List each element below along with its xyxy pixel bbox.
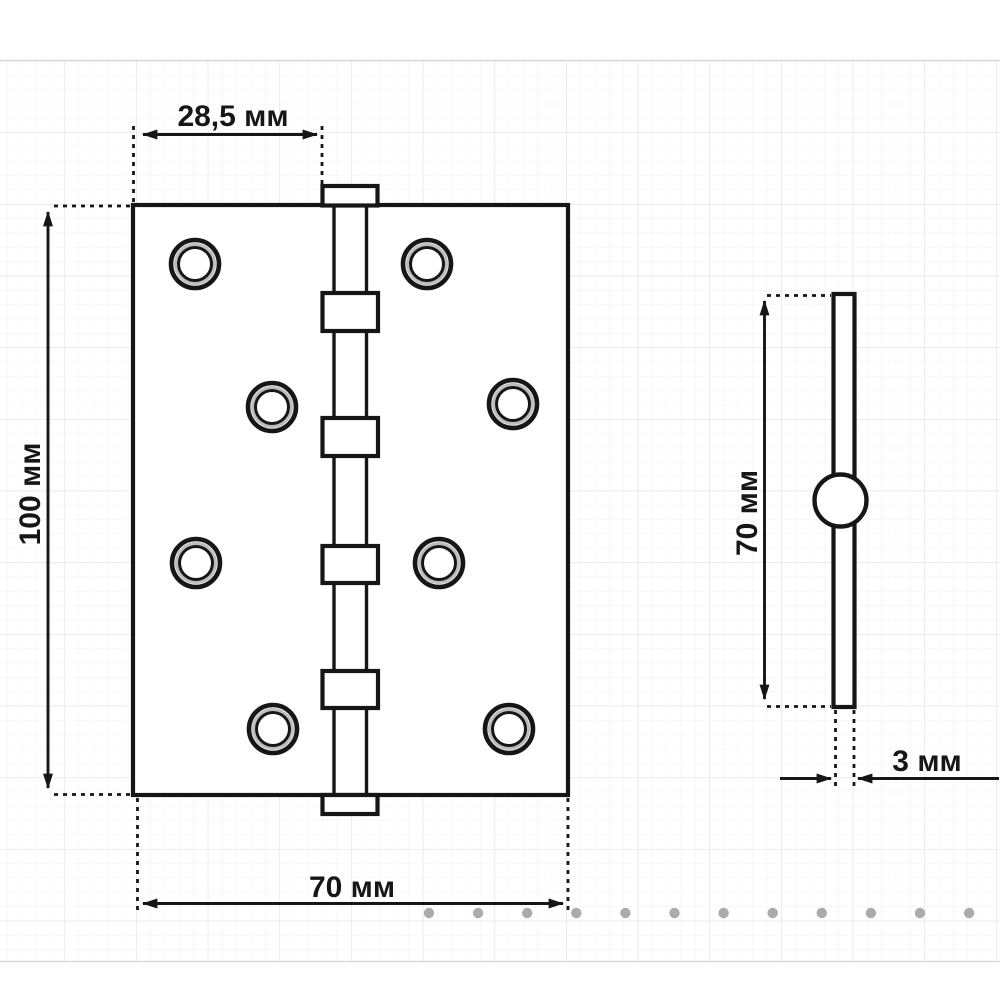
side-height-label: 70 мм — [731, 470, 764, 556]
carousel-dot[interactable] — [718, 908, 728, 918]
screw-hole — [249, 705, 297, 753]
carousel-dot[interactable] — [473, 908, 483, 918]
carousel-dot[interactable] — [669, 908, 679, 918]
screw-hole — [485, 705, 533, 753]
carousel-dot[interactable] — [768, 908, 778, 918]
hinge-knuckle — [323, 671, 379, 708]
hinge-knuckle — [323, 418, 379, 456]
side-knuckle-circle — [815, 475, 867, 527]
screw-hole — [248, 383, 296, 431]
front-width-label: 70 мм — [309, 871, 395, 904]
side-thickness-label: 3 мм — [892, 745, 961, 778]
hinge-knuckle — [323, 293, 379, 331]
carousel-dot[interactable] — [620, 908, 630, 918]
carousel-dot[interactable] — [522, 908, 532, 918]
screw-hole — [403, 240, 451, 288]
pin-top-cap — [323, 186, 378, 206]
pin-offset-label: 28,5 мм — [177, 100, 288, 133]
hinge-knuckle — [323, 546, 379, 583]
carousel-dot[interactable] — [424, 908, 434, 918]
hinge-technical-drawing: 28,5 мм 100 мм 70 мм 70 мм 3 мм — [0, 0, 1000, 1000]
screw-hole — [171, 240, 219, 288]
hinge-front-view — [133, 186, 568, 814]
carousel-dot[interactable] — [964, 908, 974, 918]
screw-hole — [172, 539, 220, 587]
screw-hole — [489, 380, 537, 428]
carousel-dot[interactable] — [915, 908, 925, 918]
pin-bottom-cap — [323, 795, 378, 814]
carousel-dot[interactable] — [571, 908, 581, 918]
product-drawing-page: 28,5 мм 100 мм 70 мм 70 мм 3 мм — [0, 0, 1000, 1000]
screw-hole — [415, 539, 463, 587]
front-height-label: 100 мм — [14, 443, 47, 546]
carousel-dot[interactable] — [866, 908, 876, 918]
carousel-dot[interactable] — [817, 908, 827, 918]
